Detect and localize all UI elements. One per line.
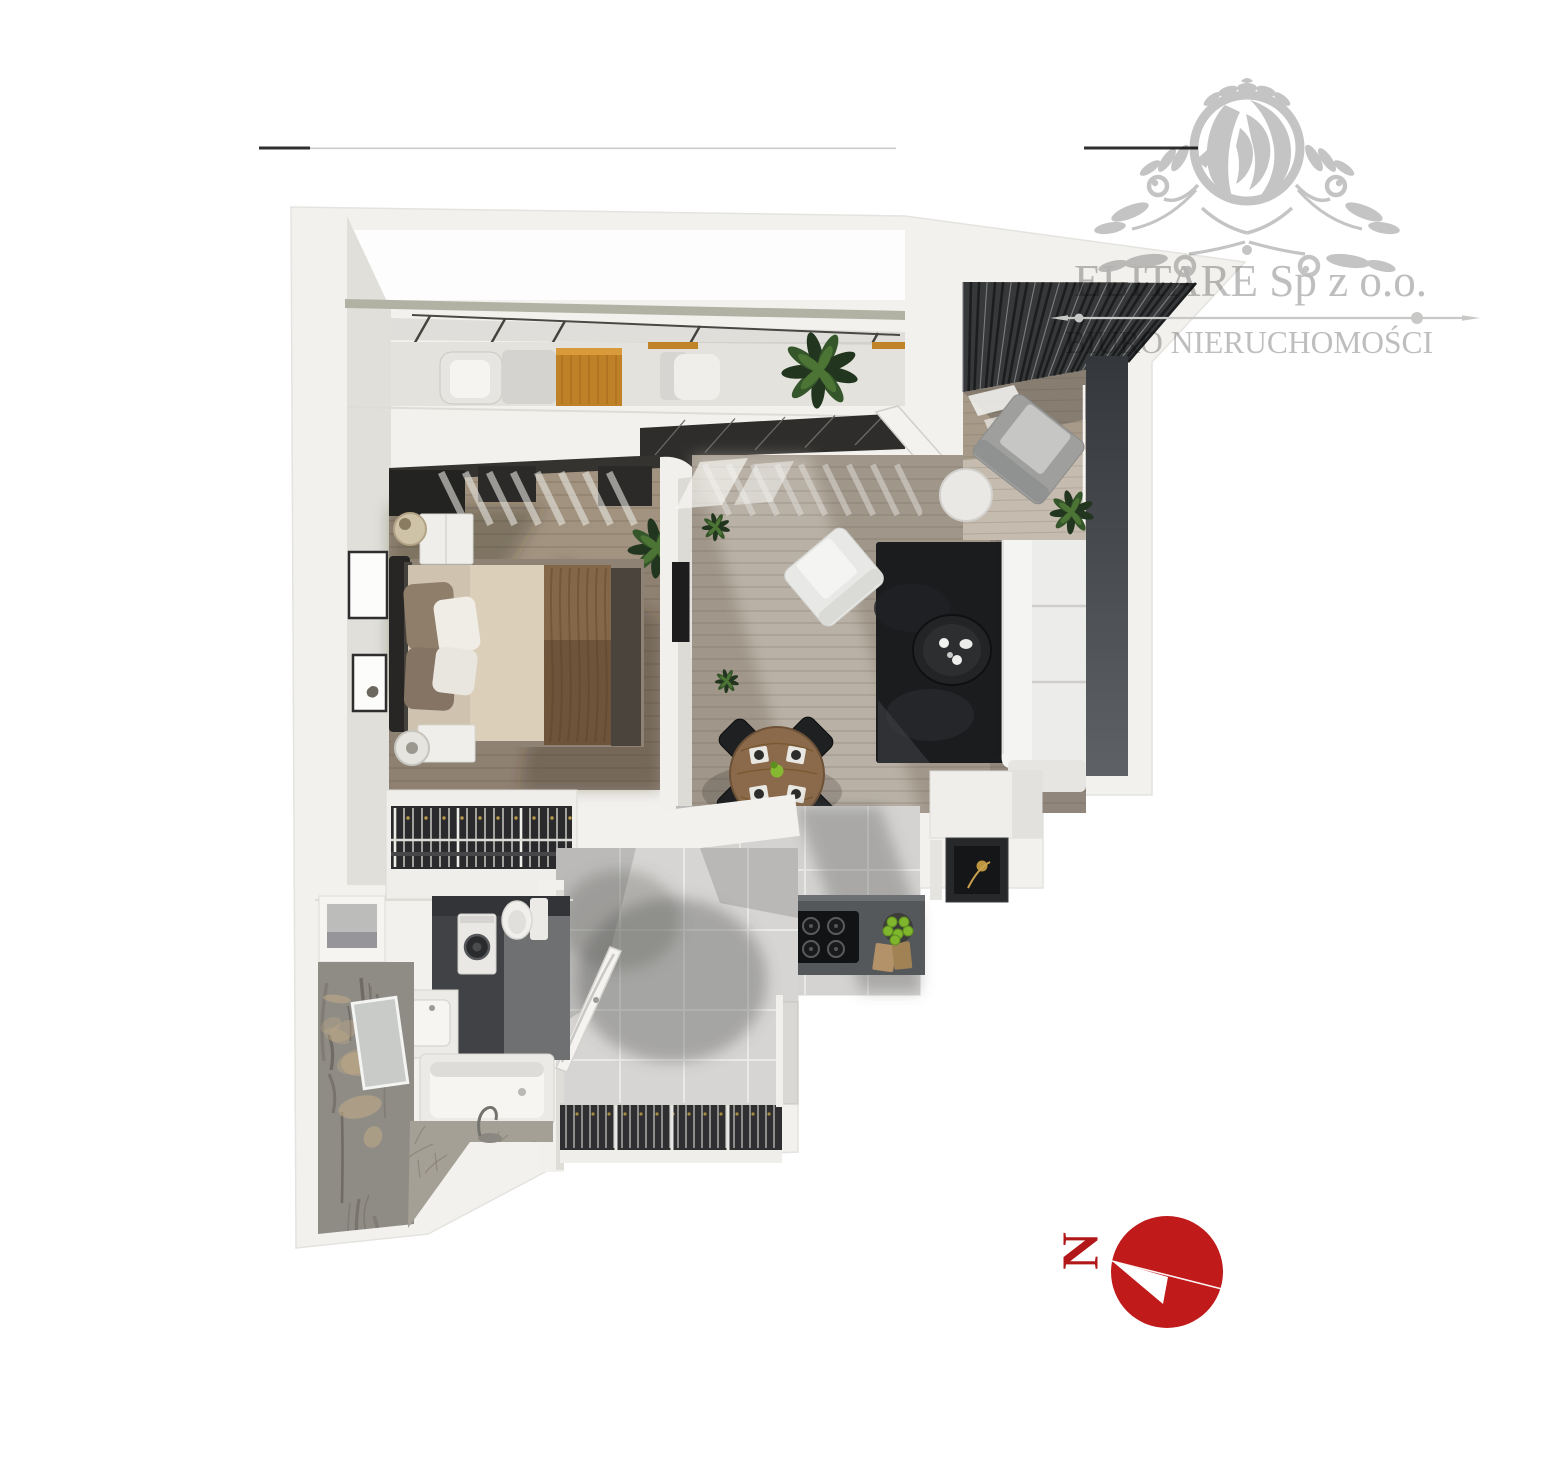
svg-text:BIURO NIERUCHOMOŚCI: BIURO NIERUCHOMOŚCI: [1065, 324, 1433, 360]
svg-text:ELITARE Sp z o.o.: ELITARE Sp z o.o.: [1074, 256, 1427, 306]
svg-text:N: N: [1053, 1232, 1110, 1270]
